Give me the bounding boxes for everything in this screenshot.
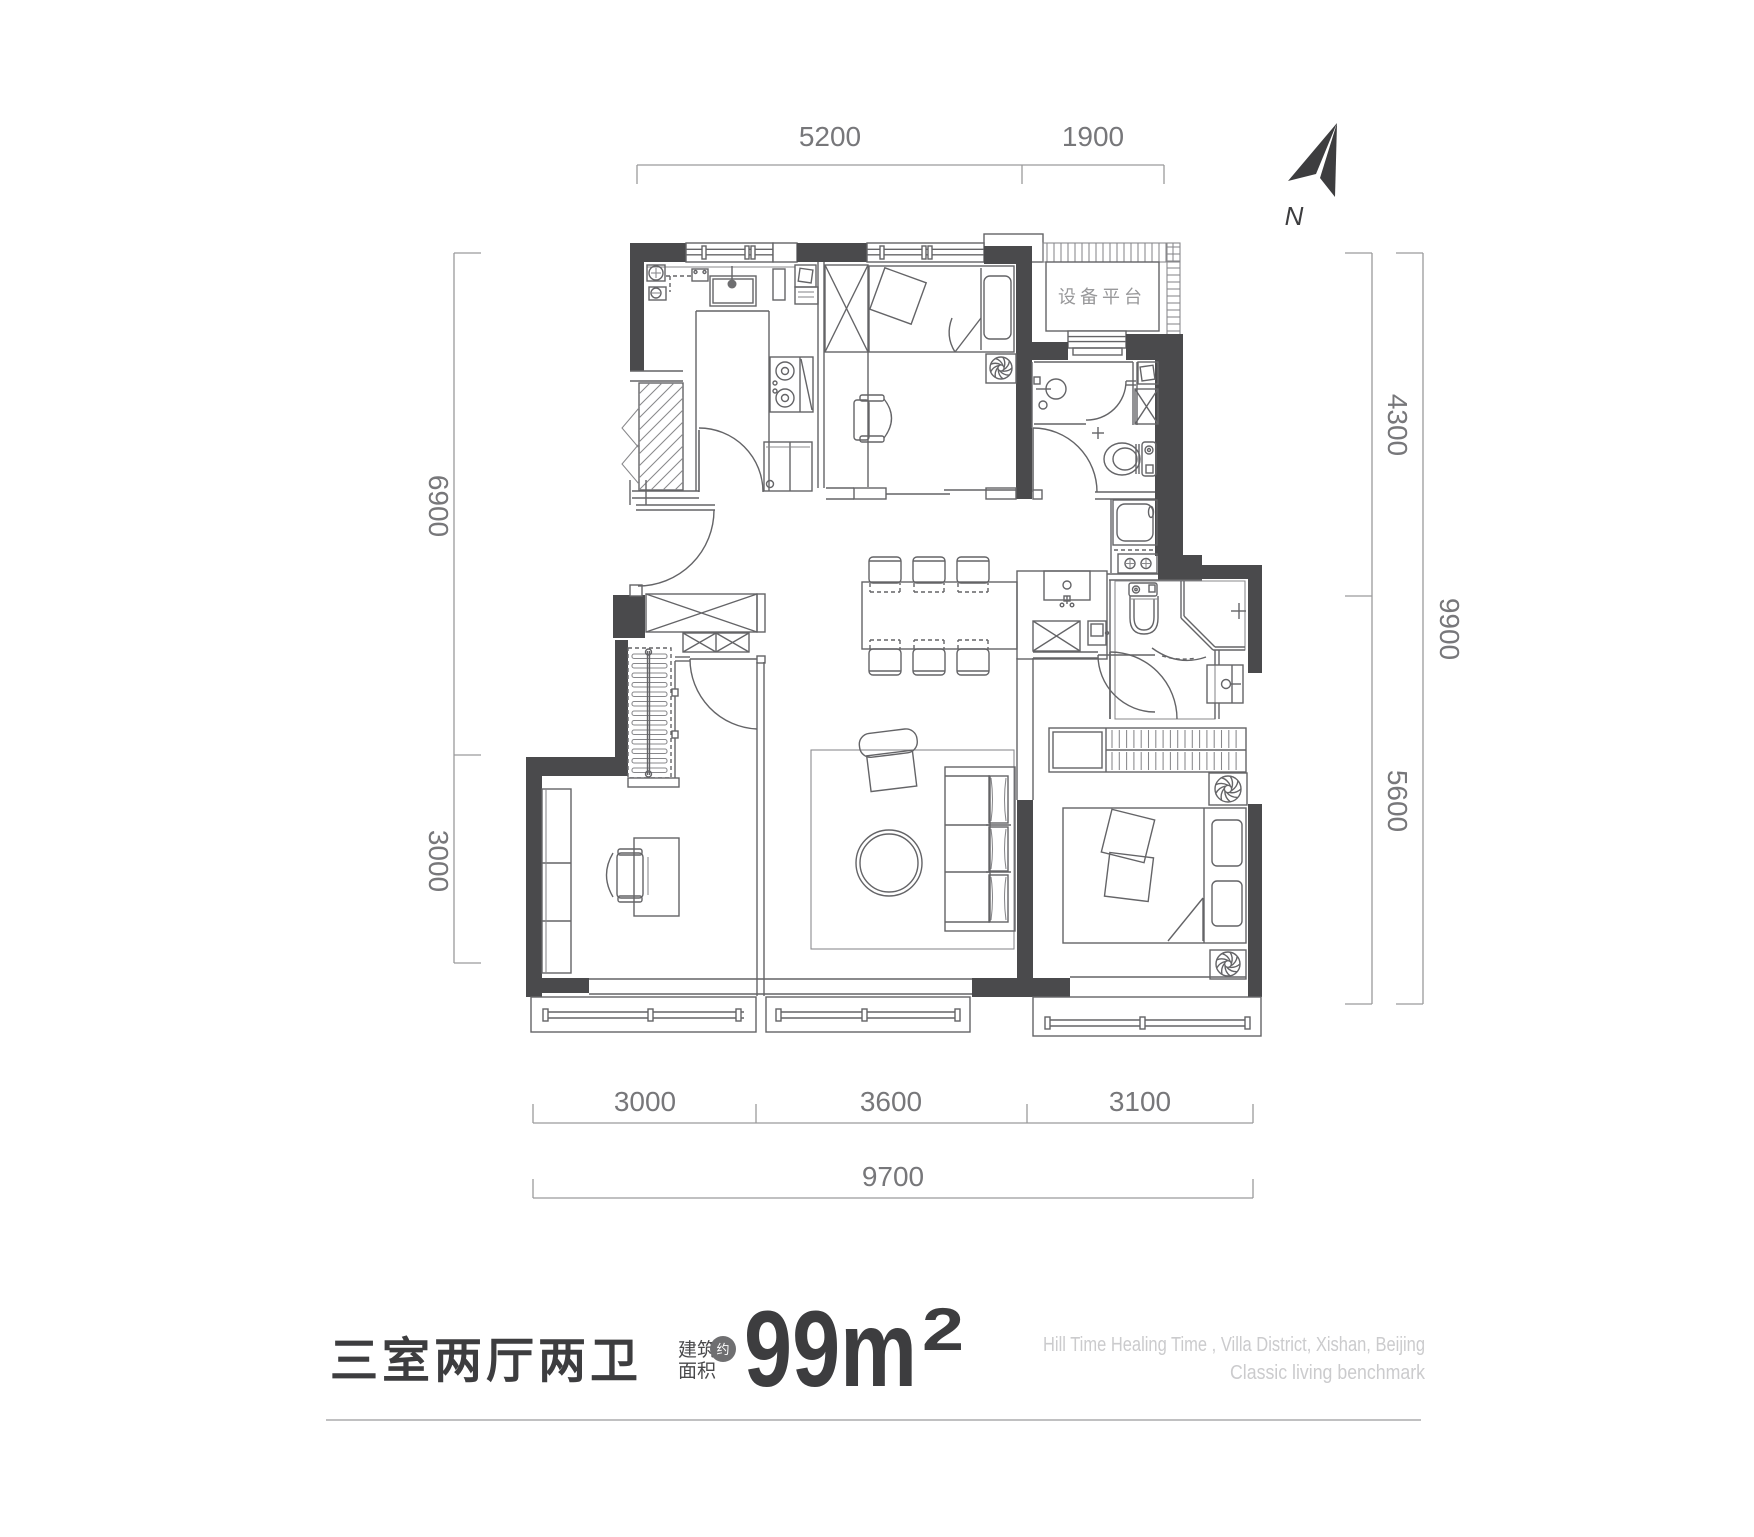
svg-text:三室两厅两卫: 三室两厅两卫 <box>330 1335 642 1388</box>
svg-text:99m: 99m <box>744 1288 917 1409</box>
svg-text:5200: 5200 <box>799 121 861 152</box>
svg-text:约: 约 <box>716 1342 729 1357</box>
svg-text:Classic living benchmark: Classic living benchmark <box>1230 1362 1426 1384</box>
svg-text:3000: 3000 <box>614 1086 676 1117</box>
svg-text:面积: 面积 <box>678 1360 716 1382</box>
svg-text:3100: 3100 <box>1109 1086 1171 1117</box>
svg-text:设备平台: 设备平台 <box>1058 287 1146 307</box>
svg-text:9700: 9700 <box>862 1161 924 1192</box>
svg-text:9900: 9900 <box>1434 598 1465 660</box>
svg-text:Hill Time Healing Time , Villa: Hill Time Healing Time , Villa District,… <box>1043 1334 1425 1356</box>
svg-text:3000: 3000 <box>423 830 454 892</box>
svg-text:4300: 4300 <box>1382 394 1413 456</box>
svg-text:6900: 6900 <box>423 475 454 537</box>
svg-text:2: 2 <box>922 1296 964 1363</box>
svg-text:5600: 5600 <box>1382 770 1413 832</box>
svg-text:3600: 3600 <box>860 1086 922 1117</box>
svg-text:1900: 1900 <box>1062 121 1124 152</box>
svg-text:N: N <box>1285 201 1304 231</box>
